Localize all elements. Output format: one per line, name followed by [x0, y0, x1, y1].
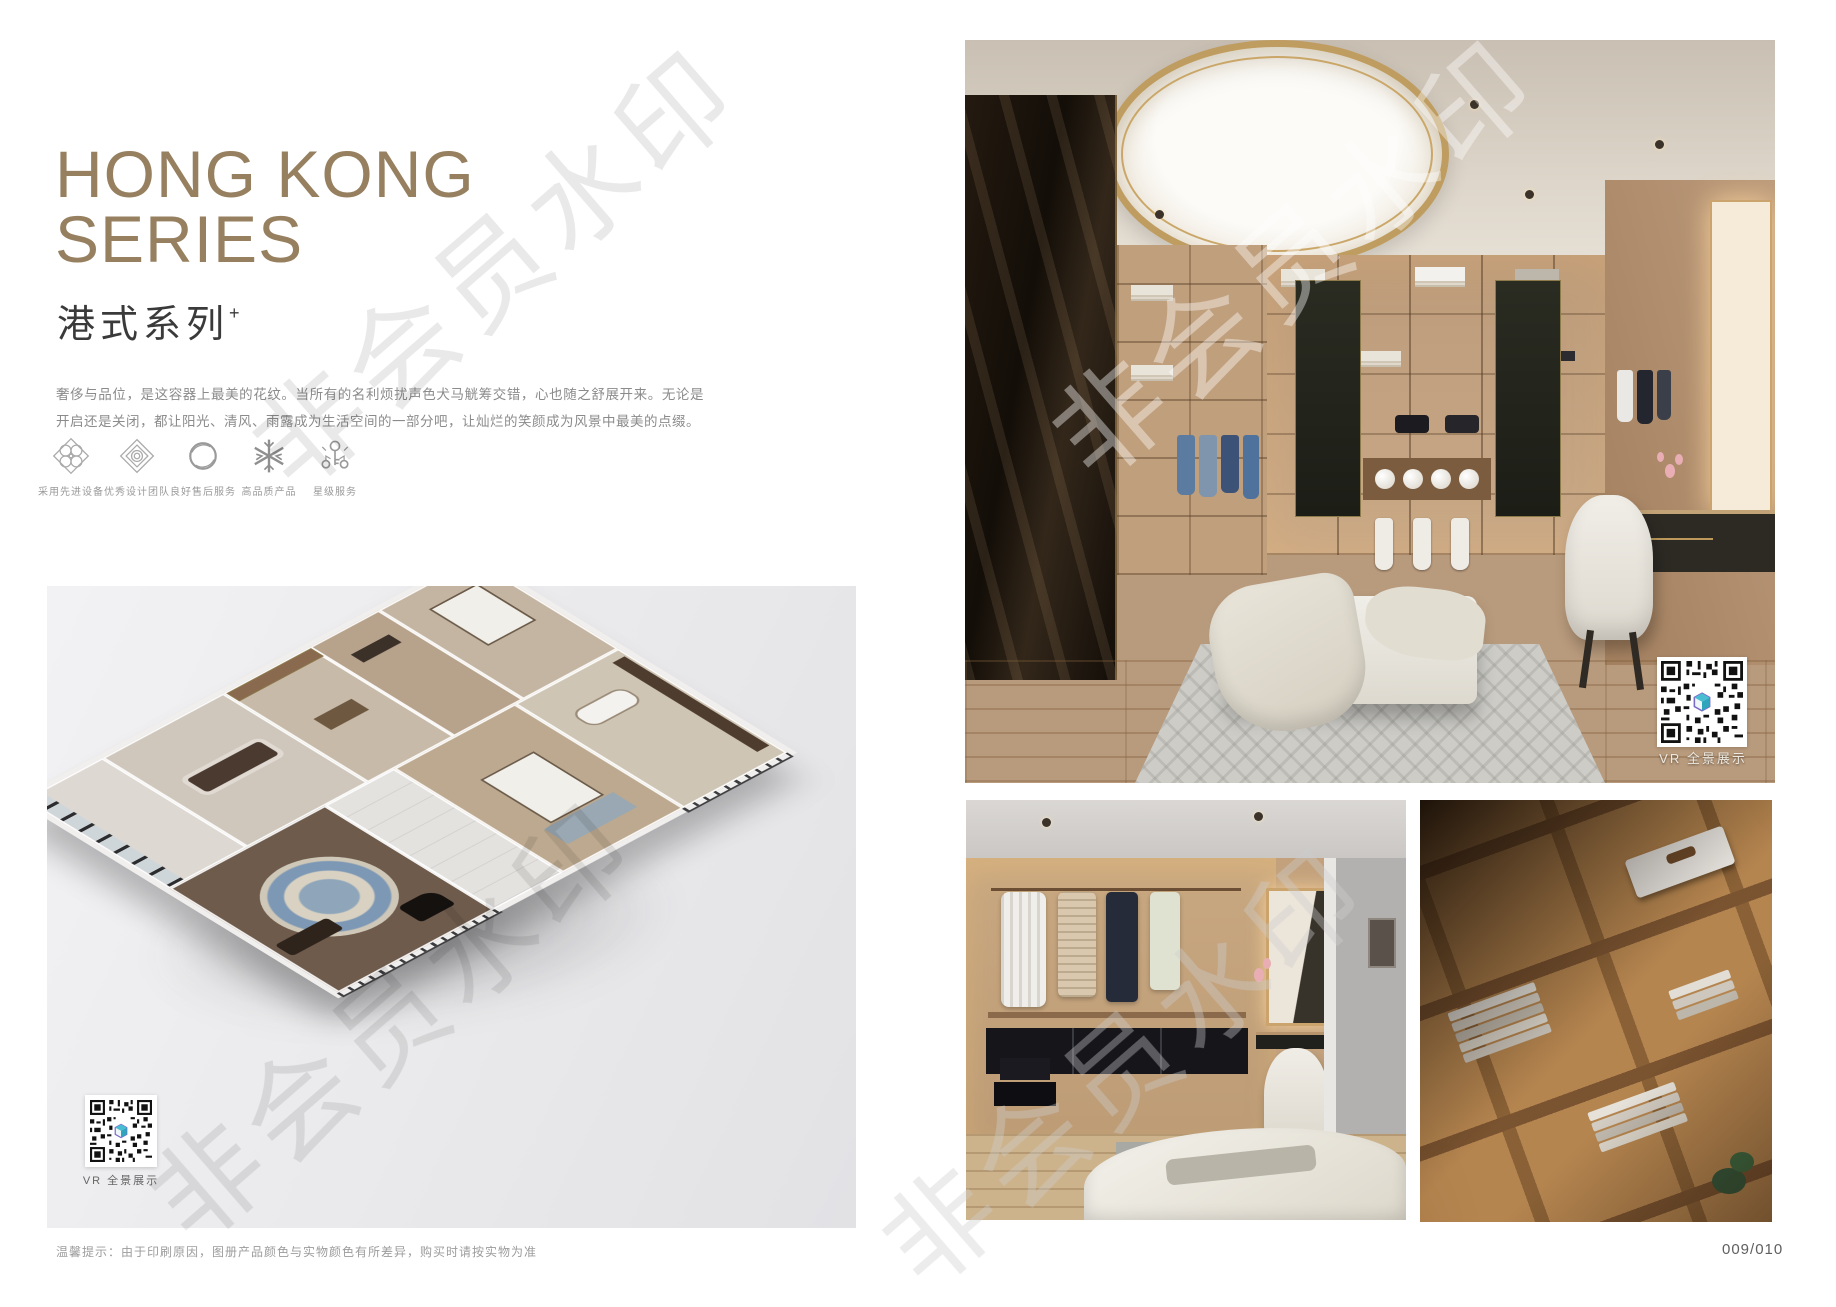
- glass-reflection: [965, 95, 1117, 680]
- footer-disclaimer: 温馨提示：由于印刷原因，图册产品颜色与实物颜色有所差异，购买时请按实物为准: [56, 1243, 537, 1260]
- plan-dining-table: [186, 741, 279, 793]
- spotlight: [1470, 100, 1479, 109]
- feature-label: 采用先进设备: [38, 483, 104, 498]
- dark-wardrobe-cabinet-left: [1295, 280, 1361, 517]
- photo-ceiling: [966, 800, 1406, 858]
- ring-icon: [183, 436, 223, 476]
- navy-garment: [1106, 892, 1138, 1002]
- folded-sweaters: [1131, 365, 1173, 375]
- royal-key-icon: [315, 436, 355, 476]
- spotlight: [1042, 818, 1051, 827]
- black-handbag: [1445, 415, 1479, 433]
- black-handbag: [1395, 415, 1429, 433]
- hat-box: [1403, 469, 1423, 489]
- black-storage-box: [994, 1082, 1056, 1106]
- pink-flowers: [1657, 452, 1664, 462]
- feature-label: 优秀设计团队: [104, 483, 170, 498]
- wall-picture: [1368, 918, 1396, 968]
- storage-box: [1415, 267, 1465, 281]
- series-description: 奢侈与品位，是这容器上最美的花纹。当所有的名利烦扰声色犬马觥筹交错，心也随之舒展…: [56, 381, 704, 435]
- spotlight: [1655, 140, 1664, 149]
- series-title-cn: 港式系列+: [57, 293, 240, 348]
- photo-vr-label: VR 全景展示: [1653, 748, 1753, 767]
- gold-handle: [1643, 538, 1713, 540]
- plan-study-desk: [351, 634, 402, 662]
- patterned-dress: [1058, 892, 1096, 997]
- feature-item: 星级服务: [302, 436, 368, 498]
- feature-item: 采用先进设备: [38, 436, 104, 498]
- qr-code-image: [90, 1100, 152, 1162]
- floorplan-qr-code: [85, 1095, 157, 1167]
- hanging-shirt: [1199, 435, 1217, 497]
- feature-item: 良好售后服务: [170, 436, 236, 498]
- pink-flowers: [1665, 464, 1675, 478]
- feature-list: 采用先进设备 优秀设计团队 良好售后服务 高品质产品: [38, 436, 368, 498]
- spotlight: [1254, 812, 1263, 821]
- white-ruffled-dress: [1001, 892, 1046, 1007]
- feature-label: 星级服务: [313, 483, 357, 498]
- plan-kitchen-island: [313, 699, 369, 730]
- hanging-jacket: [1637, 370, 1653, 424]
- plan-kitchen-cabinets: [227, 648, 324, 701]
- page-number: 009/010: [1722, 1241, 1783, 1258]
- pink-flowers: [1675, 454, 1683, 465]
- hanging-jacket: [1657, 370, 1671, 420]
- feature-item: 高品质产品: [236, 436, 302, 498]
- catalog-page: HONG KONG SERIES 港式系列+ 奢侈与品位，是这容器上最美的花纹。…: [0, 0, 1836, 1307]
- plan-bathtub: [569, 686, 645, 729]
- pink-flowers: [1263, 958, 1271, 969]
- snowflake-icon: [249, 436, 289, 476]
- qr-code-image: [1661, 661, 1743, 743]
- plan-bed: [429, 586, 537, 646]
- black-storage-box: [1000, 1058, 1050, 1080]
- pale-green-top: [1150, 892, 1180, 990]
- spotlight: [1525, 190, 1534, 199]
- hat-box: [1431, 469, 1451, 489]
- series-title-line1: HONG KONG: [55, 142, 475, 207]
- plan-glass-doors: [47, 792, 183, 887]
- folded-sweaters: [1131, 285, 1173, 295]
- dark-wardrobe-cabinet-right: [1495, 280, 1561, 517]
- lattice-icon: [117, 436, 157, 476]
- backlit-mirror: [1710, 200, 1772, 514]
- hat-box: [1375, 469, 1395, 489]
- hanging-robe: [1451, 518, 1469, 570]
- gold-ring-ceiling-light: [1105, 40, 1449, 268]
- gray-wall: [1336, 858, 1406, 1138]
- dark-glass-wardrobe: [965, 95, 1117, 680]
- feature-label: 高品质产品: [242, 483, 297, 498]
- hanging-robe: [1375, 518, 1393, 570]
- hanging-shirt: [1221, 435, 1239, 493]
- shadow-vignette: [1420, 800, 1772, 1222]
- hatbox-cubbies: [1363, 458, 1491, 500]
- hanging-shirt: [1243, 435, 1259, 499]
- plan-piano: [397, 889, 456, 922]
- feature-label: 良好售后服务: [170, 483, 236, 498]
- main-photo-walkin-closet: VR 全景展示: [965, 40, 1775, 783]
- hanging-shirt: [1177, 435, 1195, 495]
- white-armchair: [1565, 495, 1653, 640]
- photo-qr-code: [1657, 657, 1747, 747]
- pinwheel-icon: [51, 436, 91, 476]
- floorplan-vr-label: VR 全景展示: [71, 1172, 171, 1188]
- floorplan-panel: VR 全景展示: [47, 586, 856, 1228]
- photo-shelf-closeup: [1420, 800, 1772, 1222]
- hat-box: [1459, 469, 1479, 489]
- pink-flowers: [1254, 968, 1264, 982]
- left-shelving-unit: [1117, 245, 1267, 575]
- series-title-line2: SERIES: [55, 207, 475, 272]
- clothes-rail: [991, 888, 1241, 891]
- plus-mark: +: [229, 303, 240, 323]
- series-title-en: HONG KONG SERIES: [55, 142, 475, 271]
- folded-clothes: [1361, 351, 1401, 361]
- hanging-robe: [1413, 518, 1431, 570]
- hanging-blouse: [1617, 370, 1633, 422]
- photo-dressing-room: [966, 800, 1406, 1220]
- closet-shelf: [988, 1012, 1246, 1018]
- feature-item: 优秀设计团队: [104, 436, 170, 498]
- spotlight: [1155, 210, 1164, 219]
- plan-balcony-railing: [682, 753, 794, 813]
